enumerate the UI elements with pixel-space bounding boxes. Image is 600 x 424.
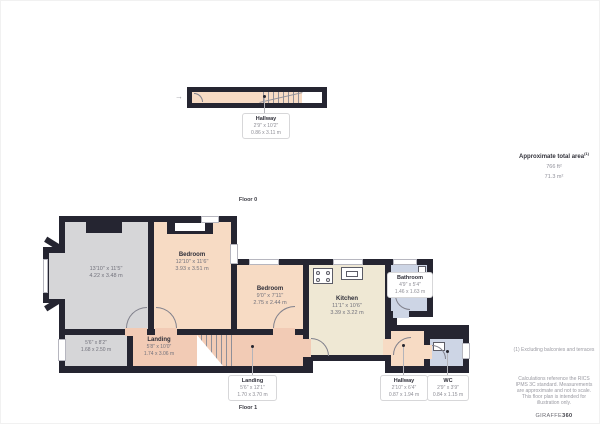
room-label-landing-upper: Landing 5'8" x 10'0" 1.74 x 3.06 m: [127, 336, 191, 357]
floor0-hallway-floor: [192, 92, 302, 103]
stair-line: [288, 92, 289, 103]
room-size-metric: 1.70 x 3.70 m: [231, 392, 274, 399]
stair-line: [226, 335, 227, 366]
floor0-label: Floor 0: [208, 197, 288, 203]
room-name: Hallway: [245, 116, 287, 123]
stove-icon: [313, 268, 333, 284]
sidebar-disclaimer: Calculations reference the RICS IPMS 3C …: [513, 376, 595, 406]
room-name: Hallway: [383, 378, 425, 385]
chimney-recess: [175, 223, 205, 231]
room-size-metric: 1.46 x 1.63 m: [390, 289, 430, 296]
room-size-imperial: 9'0" x 7'11": [228, 293, 312, 300]
room-label-bedroom2: Bedroom 9'0" x 7'11" 2.75 x 2.44 m: [228, 285, 312, 307]
room-name: Bedroom: [150, 251, 234, 259]
sidebar-disclaimer-block: Calculations reference the RICS IPMS 3C …: [507, 368, 600, 419]
room-size-metric: 2.75 x 2.44 m: [228, 300, 312, 307]
entry-arrow-icon: →: [175, 93, 183, 101]
room-name: Landing: [127, 336, 191, 344]
door-opening: [125, 328, 147, 336]
total-area-label: Approximate total area: [519, 154, 584, 160]
room-label-box-wc: WC 2'9" x 3'9" 0.84 x 1.15 m: [427, 375, 469, 401]
room-size-metric: 1.68 x 2.50 m: [63, 347, 129, 354]
chimney-breast: [86, 220, 122, 233]
brand-suffix: 360: [562, 413, 572, 419]
total-area-metric: 71.3 m²: [507, 174, 600, 180]
room-size-imperial: 12'10" x 11'6": [150, 259, 234, 266]
stair-line: [268, 92, 269, 103]
door-opening: [301, 339, 311, 357]
room-name: Bedroom: [228, 285, 312, 293]
window: [43, 259, 48, 293]
room-size-metric: 3.39 x 3.22 m: [305, 310, 389, 317]
stair-void: [197, 335, 223, 366]
room-size-metric: 0.86 x 3.11 m: [245, 130, 287, 137]
room-name: Landing: [231, 378, 274, 385]
room-name: Kitchen: [305, 295, 389, 303]
room-label-box-bathroom: Bathroom 4'9" x 5'4" 1.46 x 1.63 m: [387, 272, 433, 298]
sidebar-footnote: (1) Excluding balconies and terraces: [514, 347, 595, 353]
total-area-title: Approximate total area(1): [507, 151, 600, 160]
room-name: WC: [430, 378, 466, 385]
stair-line: [231, 335, 232, 366]
window: [462, 343, 470, 359]
leader-line: [252, 348, 253, 375]
door-opening: [273, 328, 295, 336]
door-opening: [155, 328, 177, 336]
room-label-box-hallway-floor1: Hallway 2'10" x 6'4" 0.87 x 1.94 m: [380, 375, 428, 401]
room-size-metric: 0.87 x 1.94 m: [383, 392, 425, 399]
window: [393, 259, 417, 265]
giraffe360-logo: GIRAFFE360: [507, 413, 600, 419]
floorplan-page: → Hallway 2'9" x 10'2" 0.86 x 3.11 m Flo…: [0, 0, 600, 424]
room-size-metric: 1.74 x 3.06 m: [127, 351, 191, 358]
room-size-imperial: 13'10" x 11'5": [64, 266, 148, 273]
total-area-footnote-marker: (1): [584, 151, 589, 156]
brand-name: GIRAFFE: [535, 413, 562, 419]
room-size-metric: 0.84 x 1.15 m: [430, 392, 466, 399]
floor0-stair-void: [302, 92, 322, 103]
room-label-bedroom1: Bedroom 12'10" x 11'6" 3.93 x 3.51 m: [150, 251, 234, 273]
window: [201, 216, 219, 223]
room-name: Bathroom: [390, 275, 430, 282]
leader-line: [403, 347, 404, 375]
floor1-label: Floor 1: [208, 405, 288, 411]
door-opening: [393, 309, 409, 318]
room-label-kitchen: Kitchen 11'1" x 10'6" 3.39 x 3.22 m: [305, 295, 389, 317]
room-label-box-landing: Landing 5'6" x 12'1" 1.70 x 3.70 m: [228, 375, 277, 401]
room-label-store: 5'6" x 8'2" 1.68 x 2.50 m: [63, 340, 129, 353]
leader-line: [264, 98, 265, 113]
kitchen-sink-icon: [341, 267, 363, 280]
leader-line: [447, 353, 448, 375]
total-area-imperial: 766 ft²: [507, 164, 600, 170]
door-opening: [383, 339, 393, 355]
total-area-block: Approximate total area(1) 766 ft² 71.3 m…: [507, 151, 600, 180]
room-size-metric: 4.22 x 3.48 m: [64, 273, 148, 280]
door-opening: [423, 345, 432, 359]
room-size-imperial: 11'1" x 10'6": [305, 303, 389, 310]
window: [333, 259, 363, 265]
window: [249, 259, 279, 265]
room-label-box-hallway-floor0: Hallway 2'9" x 10'2" 0.86 x 3.11 m: [242, 113, 290, 139]
room-label-reception: 13'10" x 11'5" 4.22 x 3.48 m: [64, 266, 148, 280]
room-size-metric: 3.93 x 3.51 m: [150, 266, 234, 273]
sidebar-footnote-block: (1) Excluding balconies and terraces: [507, 331, 600, 368]
